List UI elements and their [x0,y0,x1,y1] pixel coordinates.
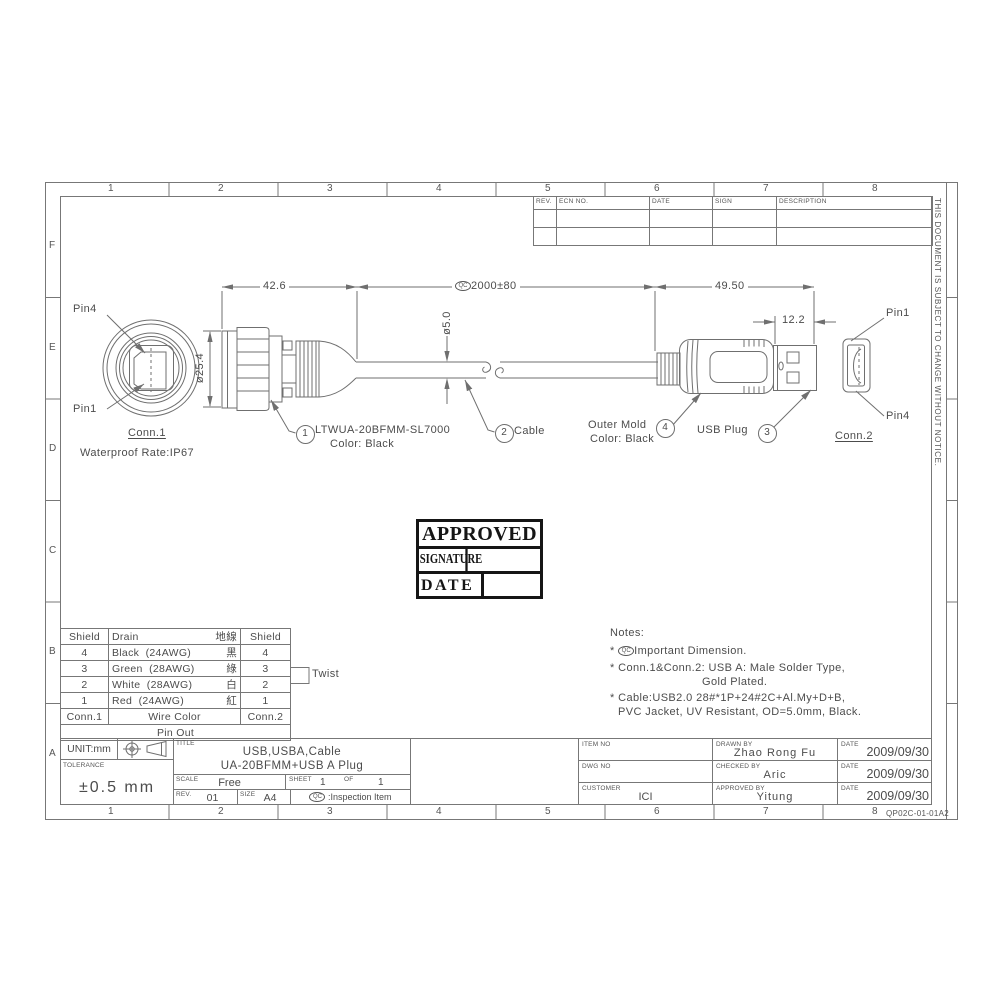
pinout-cell: Black (24AWG)黑 [109,645,241,661]
dim-2000-label: QC2000±80 [452,280,520,292]
grid-col-bottom-8: 8 [872,806,878,817]
pinout-row: 1 Red (24AWG)紅 1 [61,693,291,709]
qc-oval-icon: QC [309,792,325,802]
pinout-footer-wirecolor: Wire Color [109,709,241,725]
grid-col-top-7: 7 [763,183,769,194]
grid-col-bottom-5: 5 [545,806,551,817]
grid-col-top-5: 5 [545,183,551,194]
conn2-pin1-label: Pin1 [886,307,910,319]
item-no-cell: ITEM NO [578,738,713,761]
rev-empty-cell [534,228,557,246]
rev-empty-cell [650,228,713,246]
callout-4-text: Outer Mold [588,419,646,431]
side-change-notice: THIS DOCUMENT IS SUBJECT TO CHANGE WITHO… [933,198,942,618]
rev-header-description: DESCRIPTION [777,197,933,210]
revision-table: REV. ECN NO. DATE SIGN DESCRIPTION [533,196,933,246]
rev-empty-cell [534,210,557,228]
pinout-cell: 4 [241,645,291,661]
rev-cell: REV. 01 [173,789,238,805]
grid-col-top-2: 2 [218,183,224,194]
pinout-row: 2 White (28AWG)白 2 [61,677,291,693]
drawn-by-cell: DRAWN BY Zhao Rong Fu [712,738,838,761]
rev-empty-cell [713,228,777,246]
conn2-pin4-label: Pin4 [886,410,910,422]
grid-col-bottom-4: 4 [436,806,442,817]
grid-col-top-3: 3 [327,183,333,194]
pinout-footer-conn2: Conn.2 [241,709,291,725]
inspection-label: :Inspection Item [328,792,392,802]
grid-col-top-8: 8 [872,183,878,194]
approved-by-cell: APPROVED BY Yitung [712,782,838,805]
drawn-by-value: Zhao Rong Fu [713,747,837,759]
pinout-cell: White (28AWG)白 [109,677,241,693]
rev-empty-cell [777,228,933,246]
date-cell-2: DATE 2009/09/30 [837,760,932,783]
grid-col-top-4: 4 [436,183,442,194]
note-1: * QCImportant Dimension. [610,645,747,657]
notes-title: Notes: [610,627,644,639]
grid-row-b: B [49,646,56,657]
sheet-cell: SHEET 1 OF 1 [285,774,411,790]
rev-empty-cell [777,210,933,228]
rev-header-rev: REV. [534,197,557,210]
sheet-of-value: 1 [378,777,384,788]
callout-3-text: USB Plug [697,424,748,436]
grid-row-f: F [49,240,55,251]
sheet-value: 1 [320,777,326,788]
rev-value: 01 [188,792,237,804]
stamp-date-label: DATE [419,574,484,599]
stamp-approved-row: APPROVED [419,522,540,549]
pinout-cell: 1 [61,693,109,709]
pinout-cell: 3 [61,661,109,677]
twist-label: Twist [312,668,339,680]
sheet-code: QP02C-01-01A2 [886,809,949,818]
customer-cell: CUSTOMER ICI [578,782,713,805]
tolerance-label: TOLERANCE [63,762,104,769]
grid-row-c: C [49,545,56,556]
twist-bracket [290,668,309,684]
note-3-line2: PVC Jacket, UV Resistant, OD=5.0mm, Blac… [618,706,861,718]
grid-row-a: A [49,748,56,759]
pinout-cell: 1 [241,693,291,709]
checked-by-value: Aric [713,769,837,781]
title-cell: TITLE USB,USBA,Cable UA-20BFMM+USB A Plu… [173,738,411,775]
note-3-line1: * Cable:USB2.0 28#*1P+24#2C+Al.My+D+B, [610,692,845,704]
approved-stamp: APPROVED SIGNATURE DATE [416,519,543,599]
grid-col-bottom-2: 2 [218,806,224,817]
date-cell-3: DATE 2009/09/30 [837,782,932,805]
stamp-date-value [484,574,540,599]
callout-4-color: Color: Black [590,433,654,445]
note-2-line2: Gold Plated. [702,676,767,688]
grid-col-bottom-1: 1 [108,806,114,817]
projection-symbol-cell [117,738,174,760]
tolerance-value: ±0.5 mm [61,779,173,797]
pinout-row: 4 Black (24AWG)黑 4 [61,645,291,661]
rev-empty-cell [650,210,713,228]
rev-empty-cell [557,210,650,228]
sheet-label: SHEET [289,776,312,783]
conn1-front-view [103,315,199,416]
date-value-1: 2009/09/30 [838,745,929,759]
grid-col-bottom-6: 6 [654,806,660,817]
callout-2-balloon: 2 [495,424,514,443]
pinout-cell: 3 [241,661,291,677]
date-value-2: 2009/09/30 [838,767,929,781]
pinout-cell: 2 [61,677,109,693]
dwg-no-cell: DWG NO [578,760,713,783]
pinout-cell: Red (24AWG)紅 [109,693,241,709]
grid-row-d: D [49,443,56,454]
rev-header-ecn: ECN NO. [557,197,650,210]
titleblock-empty-cell [410,738,579,805]
grid-col-bottom-3: 3 [327,806,333,817]
drawing-sheet: 1 2 3 4 5 6 7 8 1 2 3 4 5 6 7 8 QP02C-01… [0,0,1000,1000]
grid-col-top-6: 6 [654,183,660,194]
grid-col-bottom-7: 7 [763,806,769,817]
dim-49-label: 49.50 [712,280,748,292]
pinout-header-drain: Drain地線 [109,629,241,645]
drawing-title-line2: UA-20BFMM+USB A Plug [174,760,410,772]
size-cell: SIZE A4 [237,789,291,805]
unit-cell: UNIT:mm [60,738,118,760]
conn1-waterproof-label: Waterproof Rate:IP67 [80,447,194,459]
callout-2-text: Cable [514,425,545,437]
approved-by-value: Yitung [713,791,837,803]
conn1-side-view [222,328,356,411]
dimension-lines [203,287,836,407]
inspection-cell: QC :Inspection Item [290,789,411,805]
conn1-name-label: Conn.1 [128,427,166,439]
tolerance-cell: TOLERANCE ±0.5 mm [60,759,174,805]
dim-42-label: 42.6 [260,280,289,292]
callout-3-balloon: 3 [758,424,777,443]
dim-12-label: 12.2 [779,314,808,326]
grid-col-top-1: 1 [108,183,114,194]
usb-plug-side-view [657,340,817,394]
sheet-of-label: OF [344,776,353,783]
rev-header-date: DATE [650,197,713,210]
pinout-footer-conn1: Conn.1 [61,709,109,725]
size-value: A4 [250,792,290,804]
customer-value: ICI [579,791,712,803]
item-no-label: ITEM NO [582,741,610,748]
pinout-header-shield-right: Shield [241,629,291,645]
dim-d5-label: ø5.0 [441,303,453,343]
scale-cell: SCALE Free [173,774,286,790]
callout-4-balloon: 4 [656,419,675,438]
conn1-pin1-label: Pin1 [73,403,97,415]
pinout-table: Shield Drain地線 Shield 4 Black (24AWG)黑 4… [60,628,291,741]
callout-1-balloon: 1 [296,425,315,444]
rev-empty-cell [713,210,777,228]
checked-by-cell: CHECKED BY Aric [712,760,838,783]
cable-lines [356,362,658,378]
pinout-cell: 4 [61,645,109,661]
date-cell-1: DATE 2009/09/30 [837,738,932,761]
qc-oval-icon: QC [455,281,471,291]
dwg-no-label: DWG NO [582,763,611,770]
callout-1-color: Color: Black [330,438,394,450]
note-2-line1: * Conn.1&Conn.2: USB A: Male Solder Type… [610,662,845,674]
pinout-cell: 2 [241,677,291,693]
drawing-linework [0,0,1000,1000]
stamp-signature-value [483,549,540,571]
scale-value: Free [174,777,285,789]
conn2-front-view [843,318,884,416]
callout-1-text: LTWUA-20BFMM-SL7000 [315,424,450,436]
pinout-header-shield-left: Shield [61,629,109,645]
conn1-pin4-label: Pin4 [73,303,97,315]
rev-header-sign: SIGN [713,197,777,210]
pinout-row: 3 Green (28AWG)綠 3 [61,661,291,677]
dim-d25-label: ø25.4 [194,346,206,390]
stamp-signature-label: SIGNATURE [419,549,468,571]
pinout-cell: Green (28AWG)綠 [109,661,241,677]
drawing-title-line1: USB,USBA,Cable [174,746,410,758]
rev-empty-cell [557,228,650,246]
grid-row-e: E [49,342,56,353]
qc-oval-icon: QC [618,646,634,656]
date-value-3: 2009/09/30 [838,789,929,803]
conn2-name-label: Conn.2 [835,430,873,442]
